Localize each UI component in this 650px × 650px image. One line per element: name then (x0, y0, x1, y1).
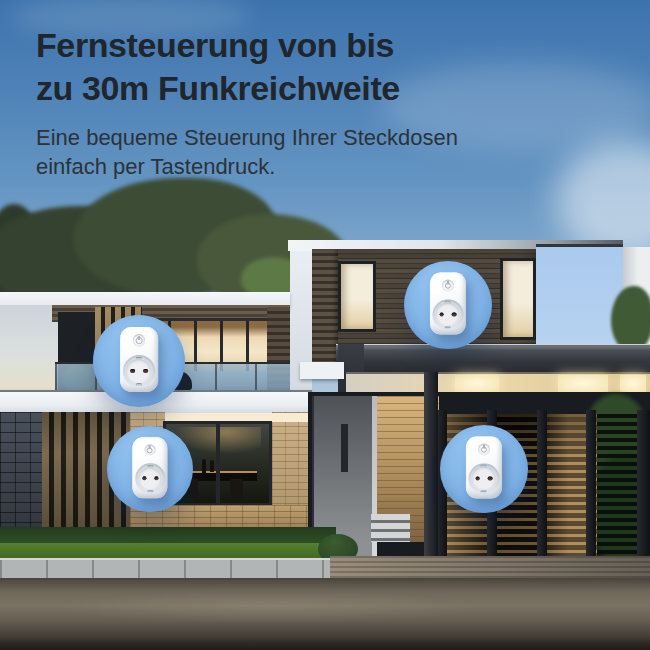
ground-clip (136, 357, 142, 359)
smart-plug-callout-lower-right (440, 425, 528, 513)
subtitle-line-2: einfach per Tastendruck. (36, 154, 275, 179)
headline-line-1: Fernsteuerung von bis (36, 26, 394, 64)
ground-clip (481, 465, 487, 467)
ground-clip (136, 383, 142, 385)
ground-clip (445, 301, 451, 303)
street-light-sheen (60, 590, 480, 624)
marketing-copy: Fernsteuerung von bis zu 30m Funkreichwe… (36, 24, 596, 181)
smart-plug-icon (120, 327, 158, 392)
socket-face (433, 299, 464, 330)
ceiling-light (558, 375, 608, 392)
paved-driveway (330, 556, 650, 580)
fence-post (637, 410, 650, 560)
tree-foliage (611, 286, 650, 352)
ground-clip (147, 465, 153, 467)
ceiling-light (620, 375, 646, 392)
window-mullion (216, 424, 220, 503)
fence-post (537, 410, 547, 560)
ground-clip (481, 490, 487, 492)
headline-line-2: zu 30m Funkreichweite (36, 69, 400, 107)
socket-face (469, 463, 500, 494)
smart-plug-callout-lower-left (107, 426, 193, 512)
lit-window (338, 261, 376, 332)
chair-silhouette (230, 479, 243, 498)
socket-hole (440, 313, 444, 317)
socket-hole (476, 477, 480, 481)
smart-plug-icon (466, 437, 502, 499)
socket-face (123, 355, 155, 387)
headline: Fernsteuerung von bis zu 30m Funkreichwe… (36, 24, 596, 110)
power-button-icon (133, 334, 145, 346)
white-beam (300, 362, 344, 379)
socket-hole (143, 369, 147, 373)
socket-face (135, 463, 165, 493)
subtitle-line-1: Eine bequeme Steuerung Ihrer Steckdosen (36, 125, 458, 150)
socket-hole (142, 476, 146, 480)
carport-roof (336, 344, 650, 375)
ground-clip (147, 490, 153, 492)
power-button-icon (144, 444, 156, 456)
socket-hole (488, 477, 492, 481)
smart-plug-icon (132, 437, 167, 498)
stacked-stone-wall (0, 412, 42, 534)
ground-clip (445, 326, 451, 328)
socket-hole (452, 313, 456, 317)
socket-hole (154, 476, 158, 480)
lit-window (500, 258, 536, 340)
smart-plug-callout-upper-right (404, 261, 492, 349)
bottle-silhouette (210, 460, 214, 472)
light-blue-wall (536, 244, 623, 347)
smart-plug-callout-upper-left (93, 315, 185, 407)
wall-slit-window (341, 424, 348, 472)
smart-plug-range-infographic: Fernsteuerung von bis zu 30m Funkreichwe… (0, 0, 650, 650)
power-button-icon (478, 443, 490, 455)
bottle-silhouette (202, 459, 206, 473)
power-button-icon (442, 279, 454, 291)
ceiling-light (455, 375, 499, 392)
socket-hole (130, 369, 134, 373)
smart-plug-icon (430, 273, 466, 335)
fence-post (586, 410, 596, 560)
carport-column (424, 372, 438, 562)
subtitle: Eine bequeme Steuerung Ihrer Steckdosen … (36, 123, 596, 181)
sidewalk (0, 558, 338, 580)
upper-wall (0, 305, 58, 394)
entrance-steps (371, 514, 410, 542)
